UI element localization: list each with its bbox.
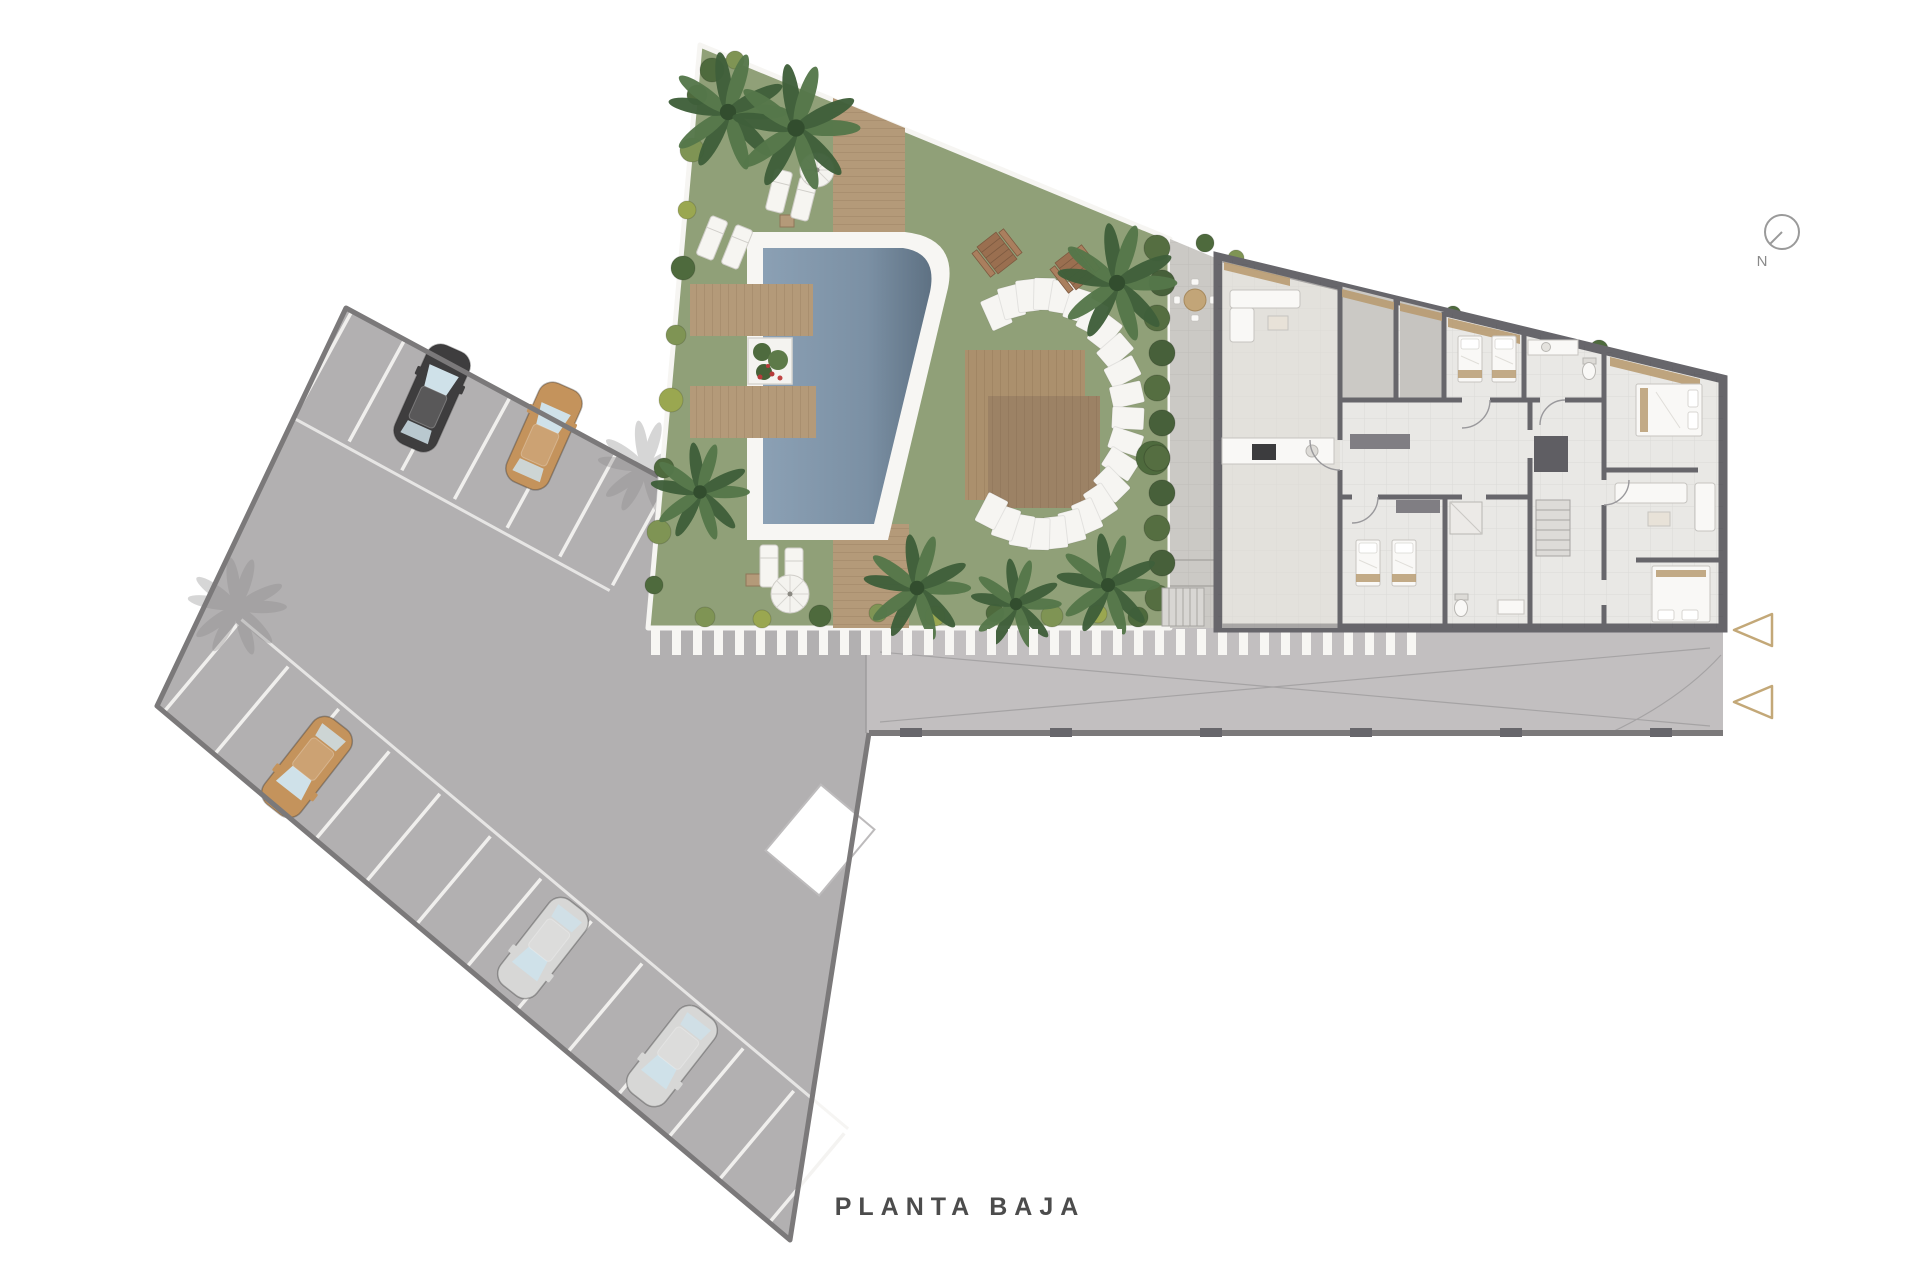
bush (695, 607, 715, 627)
compass-needle (1770, 232, 1782, 244)
bush (671, 256, 695, 280)
bush (645, 576, 663, 594)
palm-trunk (693, 485, 706, 498)
apartment-building (1218, 257, 1723, 628)
chair (1191, 315, 1199, 322)
palm-trunk (1010, 598, 1022, 610)
parasol (771, 575, 809, 613)
palm-trunk (1101, 578, 1115, 592)
entrance-arrow (1734, 614, 1772, 646)
bush (753, 610, 771, 628)
entrance-arrows (1734, 614, 1772, 718)
compass-label: N (1757, 253, 1768, 270)
elevator-shaft (1534, 436, 1568, 472)
entrance-arrow (1734, 686, 1772, 718)
table-top (1184, 289, 1206, 311)
hedge-bush (1149, 340, 1175, 366)
palm-trunk (910, 581, 925, 596)
hedge-bush (1144, 375, 1170, 401)
bush (809, 605, 831, 627)
floor-plan-canvas: N PLANTA BAJA (0, 0, 1920, 1280)
bush (647, 520, 671, 544)
bush (666, 325, 686, 345)
hall-wardrobe (1350, 434, 1410, 449)
hedge-bush (1144, 515, 1170, 541)
bush (659, 388, 683, 412)
striped-walkway (649, 629, 1419, 655)
hedge-bush (1144, 445, 1170, 471)
bush (1196, 234, 1214, 252)
sun-lounger (760, 545, 778, 587)
hedge-bush (1149, 410, 1175, 436)
parasol-pole (788, 592, 793, 597)
deck-table (746, 574, 760, 586)
bush (678, 201, 696, 219)
bedroom-right-top (1636, 384, 1702, 436)
flower-planter (748, 338, 792, 384)
compass: N (1757, 215, 1799, 270)
chair (1191, 279, 1199, 286)
hedge-bush (1149, 480, 1175, 506)
interior-stairs (1536, 500, 1570, 556)
palm-trunk (230, 600, 243, 613)
site-plan-svg: N (0, 0, 1920, 1280)
entrance-stairs (1162, 588, 1204, 626)
plan-title: PLANTA BAJA (835, 1193, 1086, 1222)
palm-trunk (1109, 275, 1125, 291)
bedroom-right-bottom (1652, 566, 1710, 622)
chair (1174, 296, 1181, 304)
palm-trunk (787, 119, 804, 136)
